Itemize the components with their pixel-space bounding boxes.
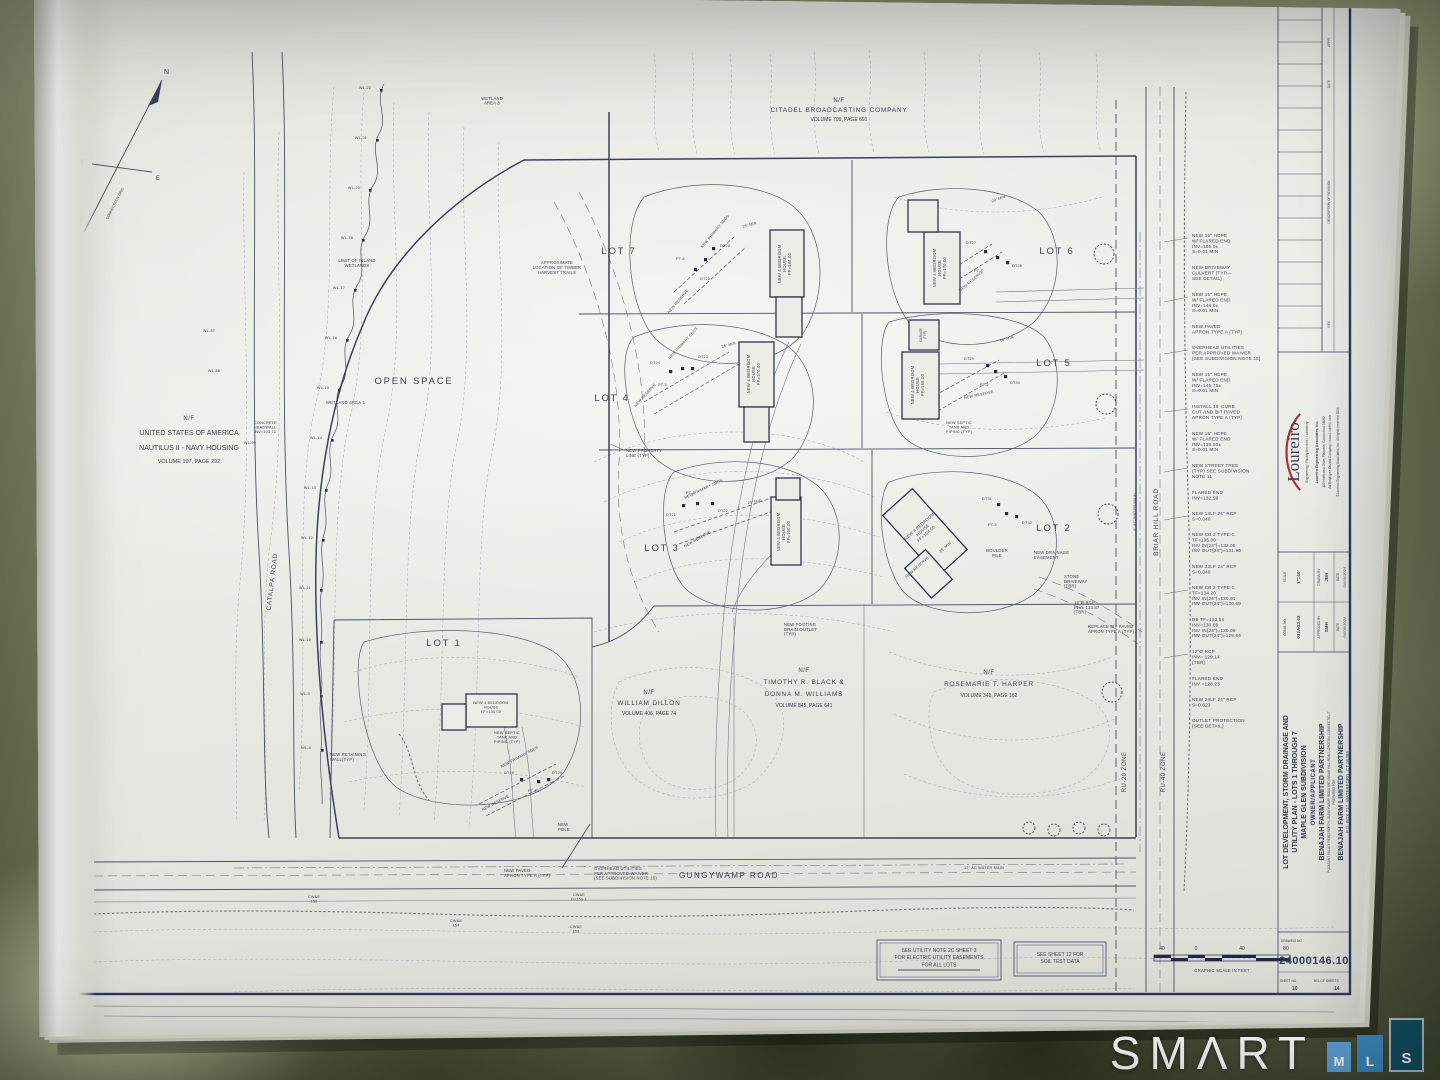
testpit-label: DT24 xyxy=(650,361,660,365)
scale-field-value: 1"=40' xyxy=(1296,570,1301,584)
drawing-no-value: 24000146.10 xyxy=(1279,955,1349,967)
scale-tick: 40 xyxy=(1159,946,1165,952)
utility-callout: NEW 33LF 24" RCPS=0.040 xyxy=(1192,564,1237,574)
setback-label: 10' MIN xyxy=(999,335,1014,343)
lot-1: NEW 4 BEDROOMHOUSEFF=130.00 DT19 PT-13 D… xyxy=(358,631,580,816)
smartmls-s-box: S xyxy=(1389,1018,1424,1072)
compass-e: E xyxy=(156,176,161,182)
testpit-label: DT26 xyxy=(720,244,730,248)
revision-header-description: DESCRIPTION OF REVISION xyxy=(1327,180,1331,224)
firm-name: Loureiro Engineering Associates, Inc. xyxy=(1315,421,1319,484)
testpit-label: DT19 xyxy=(504,771,514,775)
date-drawn-value: 04/05/2024 xyxy=(1343,566,1347,587)
setback-label: 25' MIN xyxy=(721,341,736,349)
compass-n: N xyxy=(164,69,169,76)
firm-tagline: Engineering • Facility Services • Labora… xyxy=(1305,421,1309,482)
date-approved-value: 04/05/2024 xyxy=(1343,616,1347,637)
retaining-wall-label: NEW RETAININGWALL(TYP) xyxy=(330,752,366,762)
comm-no-label: COMM. NO. xyxy=(1283,618,1287,636)
lot-label-3: LOT 3 xyxy=(644,543,679,554)
firm-contact: An Employee Owned Company • www.Loureiro… xyxy=(1328,415,1332,489)
property-line-label: NEW PROPERTYLINE (TYP) xyxy=(626,448,662,458)
road-label-briar-hill: BRIAR HILL ROAD xyxy=(1153,488,1160,556)
revision-header-appr: APPR. xyxy=(1327,37,1331,47)
revision-header-rev: REV. xyxy=(1327,320,1331,327)
open-space-label: OPEN SPACE xyxy=(374,376,453,387)
abutter-labels: N/F CITADEL BROADCASTING COMPANY VOLUME … xyxy=(139,98,1034,717)
abutter-citadel-ref: VOLUME 709, PAGE 691 xyxy=(811,117,868,123)
photo-scene: WL-22 WL-21 WL-20 WL-18 WL-17 WL-16 WL-1… xyxy=(0,0,1440,1080)
client-name: BENAJAH FARM LIMITED PARTNERSHIP xyxy=(1338,723,1345,860)
wetland-flag-label: WL-9 xyxy=(300,692,310,696)
abutter-harper-ref: VOLUME 345, PAGE 162 xyxy=(961,693,1018,699)
subdivision-name: MAPLE GLEN SUBDIVISION xyxy=(1301,745,1308,838)
abutter-black-line1: TIMOTHY R. BLACK & xyxy=(763,679,844,686)
testpit-label: DT32 xyxy=(1022,521,1032,525)
contour-lines xyxy=(94,50,1334,992)
project-title-line2: UTILITY PLAN - LOTS 1 THROUGH 7 xyxy=(1292,731,1299,852)
sheet-no-value: 10 xyxy=(1292,986,1298,992)
drawn-by-value: JBH xyxy=(1324,573,1329,582)
soil-test-note: SEE SHEET 12 FORSOIL TEST DATA xyxy=(1037,952,1084,965)
testpit-label: PT-3 xyxy=(988,523,997,527)
lot-label-4: LOT 4 xyxy=(594,393,629,404)
scale-field-label: SCALE xyxy=(1283,572,1287,582)
abutter-usa-nf: N/F xyxy=(183,416,194,422)
drainage-easement-label: NEW DRAINAGEEASEMENT xyxy=(1034,550,1069,560)
boulder-pile-label: BOULDERPILE xyxy=(986,548,1008,558)
abutter-usa-line1: UNITED STATES OF AMERICA xyxy=(139,430,239,437)
street-trees xyxy=(1023,244,1122,836)
comm-no-value: 032AG3.02 xyxy=(1296,615,1301,639)
replace-apron-label: REPLACE BIT PAVEDAPRON TYPE A (TYP) xyxy=(1088,624,1135,634)
utility-callout: NEW 15" HDPEW/ FLARED ENDINV=145.75±S=0.… xyxy=(1192,372,1231,393)
abutter-dillon-nf: N/F xyxy=(643,690,654,696)
title-block: APPR. DATE DESCRIPTION OF REVISION REV. … xyxy=(1278,0,1350,992)
road-label-catalpa: CATALPA ROAD xyxy=(266,553,280,611)
drawing-no-label: DRAWING NO. xyxy=(1281,939,1303,943)
no-of-sheets-label: NO. OF SHEETS xyxy=(1314,979,1339,983)
water-main-label: 12" AC WATER MAIN xyxy=(964,866,1004,870)
utility-callout: OUTLET PROTECTION(SEE DETAIL) xyxy=(1192,718,1245,728)
utility-callout: NEW 24LF 24" RCPS=0.023 xyxy=(1192,697,1237,707)
reserve-label: NEW RESERVE xyxy=(634,383,657,408)
testpit-label: DT30 xyxy=(1010,381,1020,385)
primary-sdds-label: NEW PRIMARY SDDS xyxy=(668,326,699,360)
cwe-label: CW&ED=153-1 xyxy=(571,893,587,901)
scale-tick: 0 xyxy=(1195,946,1198,952)
wetland-flag-label: WL-22 xyxy=(359,86,371,90)
reserve-label: NEW RESERVE xyxy=(683,530,711,549)
new-pole-label: NEWPOLE xyxy=(558,822,570,832)
cwe-label: CW&E154 xyxy=(450,919,462,927)
wetland-flag-label: WL-87 xyxy=(203,329,215,333)
septic-label: NEW SEPTICTANK ANDPIPING (TYP) xyxy=(494,731,521,744)
testpit-label: PT-13 xyxy=(528,789,539,793)
date-label: DATE xyxy=(1336,623,1340,631)
owner-name: BENAJAH FARM LIMITED PARTNERSHIP xyxy=(1319,723,1326,860)
abutter-usa-line2: NAUTILUS II - NAVY HOUSING xyxy=(139,445,239,452)
date-label: DATE xyxy=(1336,573,1340,581)
utility-callout: NEW DRIVEWAYCULVERT (TYP—SEE DETAIL) xyxy=(1192,265,1232,281)
utility-callout: FLARED ENDINV =128.23 xyxy=(1192,676,1224,686)
loureiro-logotype: Loureiro xyxy=(1284,422,1303,481)
headwall-label: CONCRETEHEADWALLINV=103.71 xyxy=(254,421,277,434)
lot-label-1: LOT 1 xyxy=(426,638,461,649)
wetland-flag-label: WL-14 xyxy=(310,436,322,440)
client-address: P.O. BOX 717, WATERFORD, CT 06385 xyxy=(1345,750,1350,833)
testpit-label: PT-2 xyxy=(980,383,989,387)
footing-drain-label: NEW FOOTINGDRAIN OUTLET(TYP) xyxy=(784,622,817,637)
testpit-label: DT22 xyxy=(718,509,728,513)
setback-label: 25' MIN xyxy=(747,499,762,505)
firm-copyright: ©Loureiro Engineering Associates, Inc. A… xyxy=(1336,407,1340,496)
zone-label-ru20: RU-20 ZONE xyxy=(1122,752,1128,793)
revision-table: APPR. DATE DESCRIPTION OF REVISION REV. xyxy=(1278,0,1350,352)
setback-label: 25' MIN xyxy=(742,221,757,229)
wetland-flag-label: WL-17 xyxy=(333,286,345,290)
wetland-flag-label: WL-10 xyxy=(299,638,311,642)
reserve-label: NEW RESERVE xyxy=(667,288,690,314)
firm-logo-block: Loureiro Engineering • Facility Services… xyxy=(1278,407,1350,552)
timber-trails-note: APPROXIMATELOCATION OF TIMBERHARVEST TRA… xyxy=(533,260,582,275)
drawn-by-label: DRAWN BY xyxy=(1317,568,1321,586)
utility-callout: NEW 15" HDPEW/ FLARED ENDINV=146.0±S=0.0… xyxy=(1192,292,1231,313)
site-plan-drawing: WL-22 WL-21 WL-20 WL-18 WL-17 WL-16 WL-1… xyxy=(34,0,1406,1040)
utility-callout: OVERHEAD UTILITIESPER APPROVED WAIVER(SE… xyxy=(1192,345,1261,361)
electric-easement-note: SEE UTILITY NOTE 2C SHEET 2FOR ELECTRIC … xyxy=(895,948,984,968)
drawing-number-block: DRAWING NO. 24000146.10 SHEET NO. 10 NO.… xyxy=(1278,939,1350,992)
reserve-label: NEW RESERVE xyxy=(959,270,985,293)
project-location: PLEASANT VALLEY ROAD NORTH, GUNGYWAMP RO… xyxy=(1327,711,1331,872)
revision-header-date: DATE xyxy=(1327,80,1331,88)
lot-5: GARAGE(TYP) NEW 4 BEDROOMHOUSEFF=166.00 … xyxy=(881,314,1071,457)
testpit-label: PT-5 xyxy=(658,383,667,387)
cwe-label: CW&E155 xyxy=(308,895,320,903)
abutter-black-nf: N/F xyxy=(798,668,809,674)
scale-tick: 40 xyxy=(1239,946,1245,952)
wetland-flag-label: WL-16 xyxy=(325,336,337,340)
utility-callout: NEW CB 2 TYPE CTF=134.20INV IN(24")=130.… xyxy=(1192,585,1241,606)
no-of-sheets-value: 14 xyxy=(1334,986,1340,992)
site-labels: OPEN SPACE APPROXIMATELOCATION OF TIMBER… xyxy=(254,96,1135,933)
water-main-label: 8" AC WATER MAIN xyxy=(1133,493,1137,531)
wetland-flag-label: WL-90 xyxy=(244,441,256,445)
utility-callout: NEW STREET TREE(TYP) SEE SUBDIVISIONNOTE… xyxy=(1192,463,1250,479)
abutter-black-ref: VOLUME 845, PAGE 641 xyxy=(776,703,833,709)
abutter-usa-ref: VOLUME 197, PAGE 292 xyxy=(158,459,221,465)
testpit-label: DT23 xyxy=(698,355,708,359)
testpit-label: DT27 xyxy=(966,241,976,245)
overhead-utilities-label: OVERHEAD UTILITIESPER APPROVED WAIVER(SE… xyxy=(594,866,657,881)
abutter-harper-nf: N/F xyxy=(983,670,994,676)
utility-callout: 12"Ø RCPINV= 129.14(TBR) xyxy=(1192,649,1220,665)
testpit-label: DT31 xyxy=(982,497,992,501)
wetland-flag-label: WL-21 xyxy=(355,136,367,140)
testpit-label: DT28 xyxy=(1012,264,1022,268)
utility-callouts: NEW 15" HDPEW/ FLARED ENDINV=150.0±S=0.0… xyxy=(1164,233,1261,728)
stone-driveway-label: STONEDRIVEWAY(TBR) xyxy=(1064,574,1087,589)
timber-harvest-trails xyxy=(554,192,659,632)
abutter-citadel-name: CITADEL BROADCASTING COMPANY xyxy=(770,107,907,114)
testpit-label: PT-6 xyxy=(676,257,685,261)
smartmls-wordmark: SMΛRT xyxy=(1110,1033,1315,1074)
abutter-dillon-ref: VOLUME 406, PAGE 74 xyxy=(622,711,676,717)
prepared-for-label: PREPARED FOR xyxy=(1332,779,1336,805)
wetland-flag-label: WL-86 xyxy=(208,369,220,373)
compass-grid-label: CONNECTICUT GRID xyxy=(105,187,125,221)
road-label-gungywamp: GUNGYWAMP ROAD xyxy=(679,871,779,880)
setback-label: 20' MIN xyxy=(991,195,1006,204)
note-boxes: SEE UTILITY NOTE 2C SHEET 2FOR ELECTRIC … xyxy=(877,940,1106,980)
lot-label-7: LOT 7 xyxy=(601,246,636,257)
testpit-label: DT29 xyxy=(964,357,974,361)
wetland-flag-label: WL-20 xyxy=(348,186,360,190)
scale-tick: 80 xyxy=(1283,946,1289,952)
primary-sdds-label: NEW PRIMARY SDDS xyxy=(684,478,724,500)
smartmls-boxes: M L S xyxy=(1327,1018,1424,1074)
wetland-flag-label: WL-15 xyxy=(317,386,329,390)
utility-callout: DB TF=133.54INV=130.89INV IN(24")=130.09… xyxy=(1192,617,1241,638)
wetland-flag-label: WL-11 xyxy=(299,586,311,590)
lot-3: NEW 4 BEDROOMHOUSEFF=160.00 DT21 PT-1 DT… xyxy=(644,462,839,610)
wetland-flag-label: WL-13 xyxy=(304,486,316,490)
scale-caption: GRAPHIC SCALE IN FEET xyxy=(1194,968,1250,973)
testpit-label: DT21 xyxy=(666,513,676,517)
lot-label-6: LOT 6 xyxy=(1039,246,1074,257)
wetland-area3-label: WETLANDAREA 3 xyxy=(481,96,503,106)
reserve-label: NEW RESERVE xyxy=(481,794,510,812)
firm-address: 100 Northwest Drive, Plainville, Connect… xyxy=(1322,416,1326,488)
lot-4: NEW 4 BEDROOMHOUSEFF=170.00 DT24 DT23 PT… xyxy=(594,325,813,482)
testpit-label: DT20 xyxy=(552,771,562,775)
abutter-citadel-nf: N/F xyxy=(833,98,844,104)
project-title-block: LOT DEVELOPMENT, STORM DRAINAGE AND UTIL… xyxy=(1278,711,1350,932)
sheet-no-label: SHEET NO. xyxy=(1280,979,1297,983)
approved-by-value: SMH xyxy=(1324,622,1329,632)
project-title-line1: LOT DEVELOPMENT, STORM DRAINAGE AND xyxy=(1283,715,1290,869)
paved-apron-label: NEW PAVEDAPRON TYPE A (TYP) xyxy=(504,868,551,878)
wetland-flag-label: WL-12 xyxy=(301,536,313,540)
abutter-dillon-name: WILLIAM DILLON xyxy=(617,700,680,707)
paper-curl-edge xyxy=(34,0,96,1040)
utility-callout: NEW 15" HDPEW/ FLARED ENDINV=150.0±S=0.0… xyxy=(1192,233,1231,254)
cwe-label: CW&E153 xyxy=(570,925,582,933)
fields-block: SCALE 1"=40' COMM. NO. 032AG3.02 DRAWN B… xyxy=(1278,552,1350,652)
septic-label: NEW SEPTICTANK ANDPIPING (TYP) xyxy=(946,421,973,434)
abutter-harper-name: ROSEMARIE T. HARPER xyxy=(944,681,1034,688)
owner-applicant-label: OWNER/APPLICANT xyxy=(1311,759,1317,826)
utility-callout: NEW PAVEDAPRON TYPE A (TYP) xyxy=(1192,324,1243,334)
utility-callout: NEW 15" HDPEW/ FLARED ENDINV=139.50±S=0.… xyxy=(1192,431,1231,452)
zone-label-ru40: RU-40 ZONE xyxy=(1161,752,1167,793)
wetland-area1-label: WETLAND AREA 1 xyxy=(326,400,365,405)
utility-callout: FLARED ENDINV=132.59 xyxy=(1192,490,1224,500)
plan-sheet: WL-22 WL-21 WL-20 WL-18 WL-17 WL-16 WL-1… xyxy=(34,0,1406,1040)
primary-sdds-label: NEW PRIMARY SDDS xyxy=(500,745,539,768)
wetland-flag-label: WL-18 xyxy=(341,236,353,240)
lot-label-5: LOT 5 xyxy=(1036,358,1071,369)
wetland-flag-label: WL-8 xyxy=(301,746,311,750)
testpit-label: DT25 xyxy=(700,277,710,281)
abutter-black-line2: DONNA M. WILLIAMS xyxy=(765,691,844,698)
utility-callout: INSTALL 18' CURBCUT AND BIT PAVEDAPRON T… xyxy=(1192,404,1243,420)
smartmls-watermark: SMΛRT M L S xyxy=(1110,1018,1424,1074)
smartmls-m-box: M xyxy=(1327,1042,1351,1072)
lot-label-2: LOT 2 xyxy=(1036,523,1071,534)
utility-callout: NEW CB 2 TYPE CTF=135.00INV IN(24")=132.… xyxy=(1192,532,1241,553)
approved-by-label: APPROVED BY xyxy=(1317,615,1321,639)
utility-callout: NEW 14LF 24" RCPS=0.040 xyxy=(1192,511,1237,521)
limit-of-wetlands-label: LIMIT OF INLANDWETLANDS xyxy=(338,258,375,268)
reserve-label: NEW RESERVE xyxy=(964,390,995,400)
smartmls-l-box: L xyxy=(1357,1035,1383,1072)
